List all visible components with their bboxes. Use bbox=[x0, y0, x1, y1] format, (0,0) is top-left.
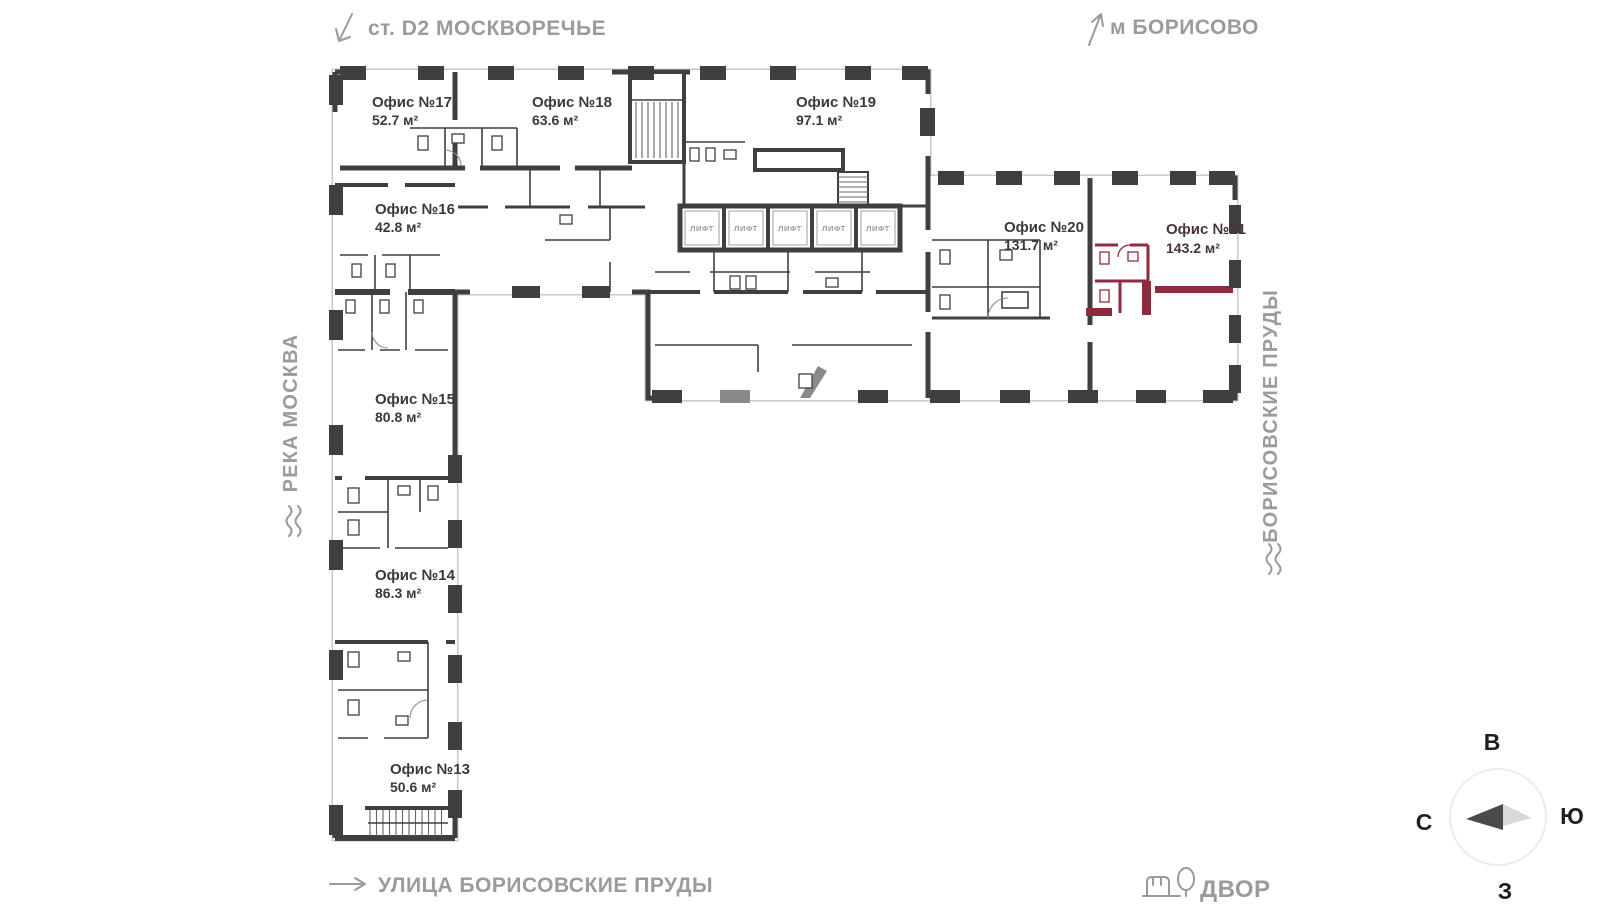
arrow-down-left-icon bbox=[336, 14, 352, 41]
station-label: ст. D2 МОСКВОРЕЧЬЕ bbox=[368, 17, 606, 40]
arrow-up-icon bbox=[1089, 14, 1103, 45]
lift-label: ЛИФТ bbox=[866, 224, 890, 233]
lift-label: ЛИФТ bbox=[734, 224, 758, 233]
svg-text:52.7 м²: 52.7 м² bbox=[372, 112, 418, 128]
svg-text:131.7 м²: 131.7 м² bbox=[1004, 237, 1058, 253]
svg-text:63.6 м²: 63.6 м² bbox=[532, 112, 578, 128]
ponds-waves-icon bbox=[1267, 544, 1281, 574]
staircase-main bbox=[630, 72, 684, 162]
svg-text:Офис №21: Офис №21 bbox=[1166, 221, 1246, 238]
yard-label: ДВОР bbox=[1200, 876, 1271, 903]
street-label: УЛИЦА БОРИСОВСКИЕ ПРУДЫ bbox=[378, 874, 713, 897]
compass-west: З bbox=[1498, 878, 1512, 904]
lift-label: ЛИФТ bbox=[822, 224, 846, 233]
compass-north: С bbox=[1416, 809, 1433, 835]
svg-text:80.8 м²: 80.8 м² bbox=[375, 409, 421, 425]
svg-text:97.1 м²: 97.1 м² bbox=[796, 112, 842, 128]
metro-label: м БОРИСОВО bbox=[1110, 16, 1259, 39]
office-20-region[interactable] bbox=[931, 181, 1087, 395]
svg-text:Офис №20: Офис №20 bbox=[1004, 219, 1084, 236]
svg-text:42.8 м²: 42.8 м² bbox=[375, 219, 421, 235]
svg-text:Офис №13: Офис №13 bbox=[390, 761, 470, 778]
lift-label: ЛИФТ bbox=[778, 224, 802, 233]
office-14-region[interactable] bbox=[338, 481, 452, 639]
svg-text:Офис №17: Офис №17 bbox=[372, 94, 452, 111]
landmark-street: УЛИЦА БОРИСОВСКИЕ ПРУДЫ bbox=[330, 874, 713, 897]
landmark-ponds: БОРИСОВСКИЕ ПРУДЫ bbox=[1260, 289, 1282, 574]
compass-east: В bbox=[1484, 729, 1501, 755]
arrow-right-icon bbox=[330, 878, 365, 890]
svg-text:Офис №19: Офис №19 bbox=[796, 94, 876, 111]
landmark-yard: ДВОР bbox=[1143, 868, 1271, 903]
yard-icon bbox=[1143, 868, 1194, 896]
floor-plan-canvas: ЛИФТ ЛИФТ ЛИФТ ЛИФТ ЛИФТ bbox=[0, 0, 1600, 920]
office-regions bbox=[338, 75, 1087, 835]
ponds-label: БОРИСОВСКИЕ ПРУДЫ bbox=[1260, 289, 1282, 543]
compass: В Ю С З bbox=[1416, 729, 1584, 904]
compass-south: Ю bbox=[1560, 803, 1584, 829]
river-label: РЕКА МОСКВА bbox=[280, 334, 302, 493]
svg-text:Офис №16: Офис №16 bbox=[375, 201, 455, 218]
landmark-metro: м БОРИСОВО bbox=[1089, 14, 1259, 45]
river-waves-icon bbox=[287, 506, 301, 536]
office-15-region[interactable] bbox=[338, 295, 452, 475]
svg-text:143.2 м²: 143.2 м² bbox=[1166, 240, 1220, 256]
landmark-station: ст. D2 МОСКВОРЕЧЬЕ bbox=[336, 14, 606, 41]
lift-label: ЛИФТ bbox=[690, 224, 714, 233]
svg-text:86.3 м²: 86.3 м² bbox=[375, 585, 421, 601]
office-13-region[interactable] bbox=[338, 645, 452, 835]
svg-text:Офис №14: Офис №14 bbox=[375, 567, 456, 584]
svg-text:Офис №18: Офис №18 bbox=[532, 94, 612, 111]
svg-text:50.6 м²: 50.6 м² bbox=[390, 779, 436, 795]
landmark-river: РЕКА МОСКВА bbox=[280, 334, 302, 536]
elevator-core: ЛИФТ ЛИФТ ЛИФТ ЛИФТ ЛИФТ bbox=[680, 206, 900, 250]
svg-text:Офис №15: Офис №15 bbox=[375, 391, 455, 408]
